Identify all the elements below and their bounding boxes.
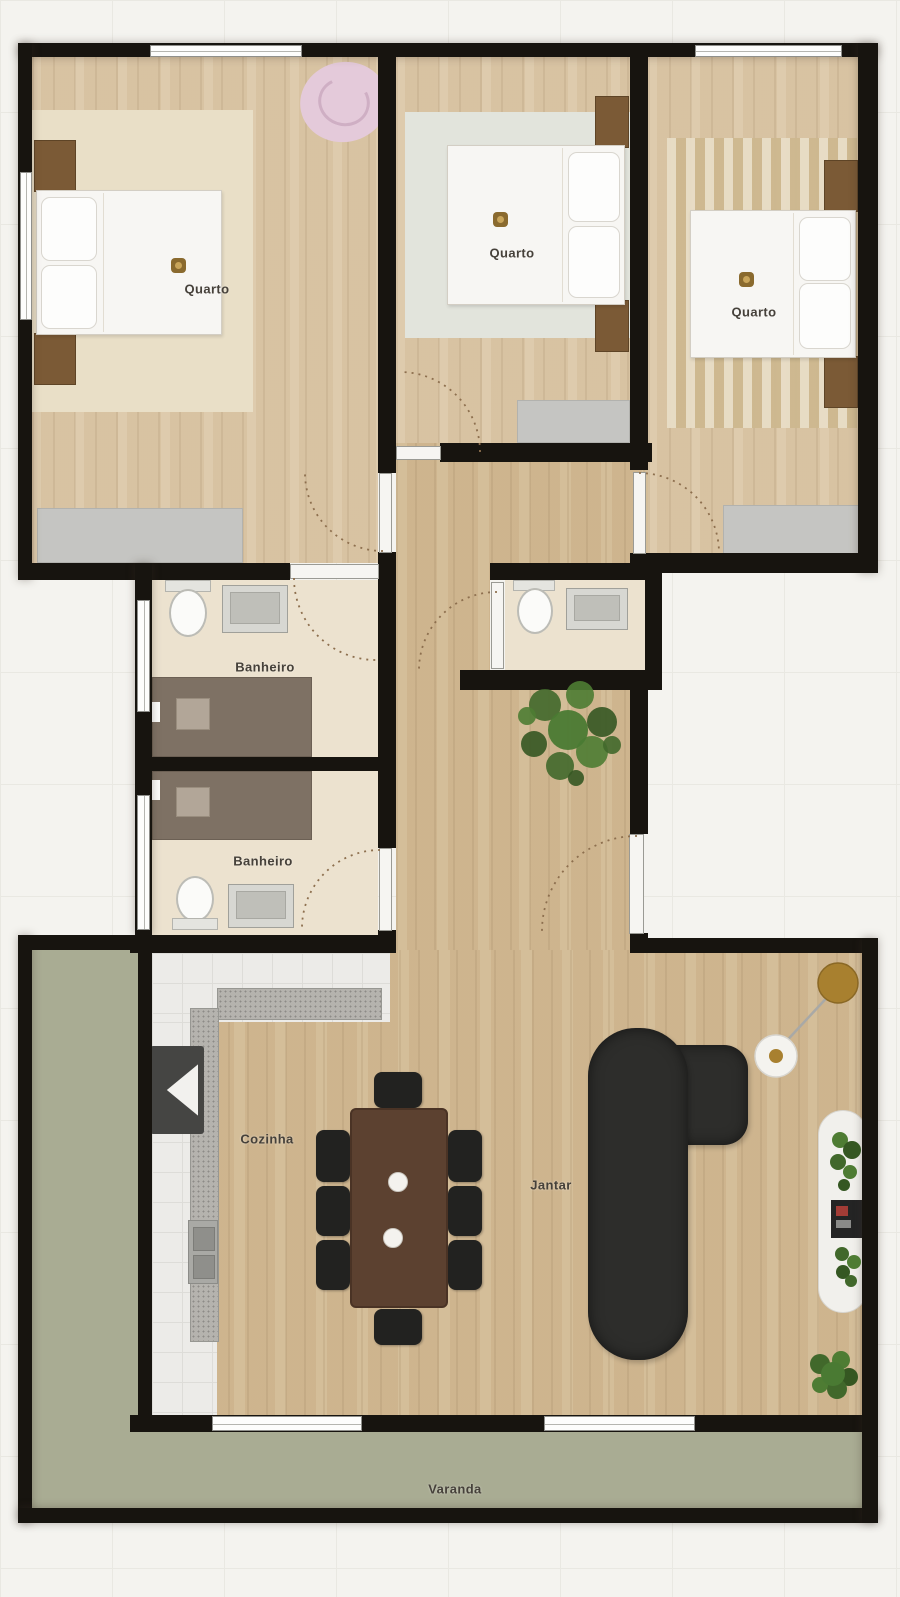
wall-powder-right [645,563,662,690]
sectional-sofa [588,1028,688,1360]
wall-bedroom-left-right-b [378,552,396,580]
balcony-side-floor [32,950,138,1432]
tv [831,1200,863,1238]
pillow [41,197,97,261]
room-label-kitchen: Cozinha [240,1132,293,1147]
nightstand [824,356,858,408]
shower-tray [176,698,210,730]
kitchen-sink [150,1046,204,1134]
tv-detail [836,1206,848,1216]
wall-bedroom-left-right-a [378,43,396,473]
dining-chair [448,1130,482,1182]
dining-chair [448,1186,482,1236]
wall-living-top-right [633,938,878,953]
dining-chair [316,1186,350,1236]
room-label-bedroom-right: Quarto [731,305,776,320]
room-label-bedroom-left: Quarto [184,282,229,297]
shower-tray [176,787,210,817]
balcony-bottom-floor [32,1432,862,1508]
wall-bedroom-middle-bottom [440,443,652,462]
toilet [517,588,553,634]
tv-detail [836,1220,851,1228]
room-label-bedroom-middle: Quarto [489,246,534,261]
wall-bedroom-right-bottom [630,553,878,573]
pillow [568,152,620,222]
nightstand [595,300,629,352]
blanket-fold [103,193,104,332]
vanity-sink [566,588,628,630]
wall-bedroom-left-bottom [18,563,290,580]
pillow [799,217,851,281]
floor-plan: Quarto Quarto Quarto Banheiro Banheiro C… [0,0,900,1597]
room-label-dining: Jantar [530,1178,571,1193]
room-label-balcony: Varanda [428,1482,481,1497]
blanket-fold [562,148,563,302]
dining-chair [374,1309,422,1345]
burner [193,1255,215,1279]
wall-outer-left-lower [18,935,32,1523]
shower-head [152,702,160,722]
door-bedroom-right [633,472,646,554]
blanket-fold [793,213,794,355]
door-bathroom-bottom [379,848,392,931]
wall-outer-bottom [18,1508,878,1523]
wall-hall-right-a [630,690,648,834]
door-bedroom-left [379,473,392,553]
cooktop [188,1220,218,1284]
toilet [169,589,207,637]
double-bed [447,145,625,305]
plate [388,1172,408,1192]
wall-outer-right-upper [858,43,878,573]
wardrobe [37,508,243,563]
dining-chair [316,1130,350,1182]
window [695,45,842,57]
wall-bathrooms-divider [135,757,396,771]
door-bathroom-top [290,564,379,579]
nightstand [595,96,629,148]
wall-powder-top [490,563,662,580]
toilet-tank [172,918,218,930]
wall-balcony-top [18,935,152,950]
window [137,795,150,930]
dining-chair [448,1240,482,1290]
nightstand [34,140,76,192]
pillow [568,226,620,298]
kitchen-counter-top [217,988,382,1020]
dining-chair [316,1240,350,1290]
door-bedroom-middle [396,446,441,460]
pillow [799,283,851,349]
wall-bedroom-middle-right [630,43,648,470]
pillow [41,265,97,329]
door-powder-room [491,582,504,669]
wall-kitchen-top [130,935,396,953]
vanity-sink [228,884,294,928]
dining-table [350,1108,448,1308]
room-label-bathroom-bottom: Banheiro [233,854,293,869]
sliding-door [544,1416,695,1431]
hall-floor-lower [396,690,630,953]
shower-head [152,780,160,800]
double-bed [36,190,222,335]
window [137,600,150,712]
sliding-door [212,1416,362,1431]
toilet [176,876,214,922]
plate [383,1228,403,1248]
wall-outer-right-lower [862,938,878,1523]
wall-kitchen-balcony-divider [138,950,152,1432]
wall-powder-bottom [460,670,662,690]
window [150,45,302,57]
wardrobe [723,505,866,560]
double-bed [690,210,856,358]
ceiling-light-icon [493,212,508,227]
room-label-bathroom-top: Banheiro [235,660,295,675]
wall-bathrooms-right-a [378,580,396,848]
nightstand [34,333,76,385]
wardrobe [517,400,630,443]
window [20,172,32,320]
ceiling-light-icon [739,272,754,287]
vanity-sink [222,585,288,633]
ceiling-light-icon [171,258,186,273]
door-entrance [629,834,644,934]
burner [193,1227,215,1251]
nightstand [824,160,858,212]
dining-chair [374,1072,422,1108]
